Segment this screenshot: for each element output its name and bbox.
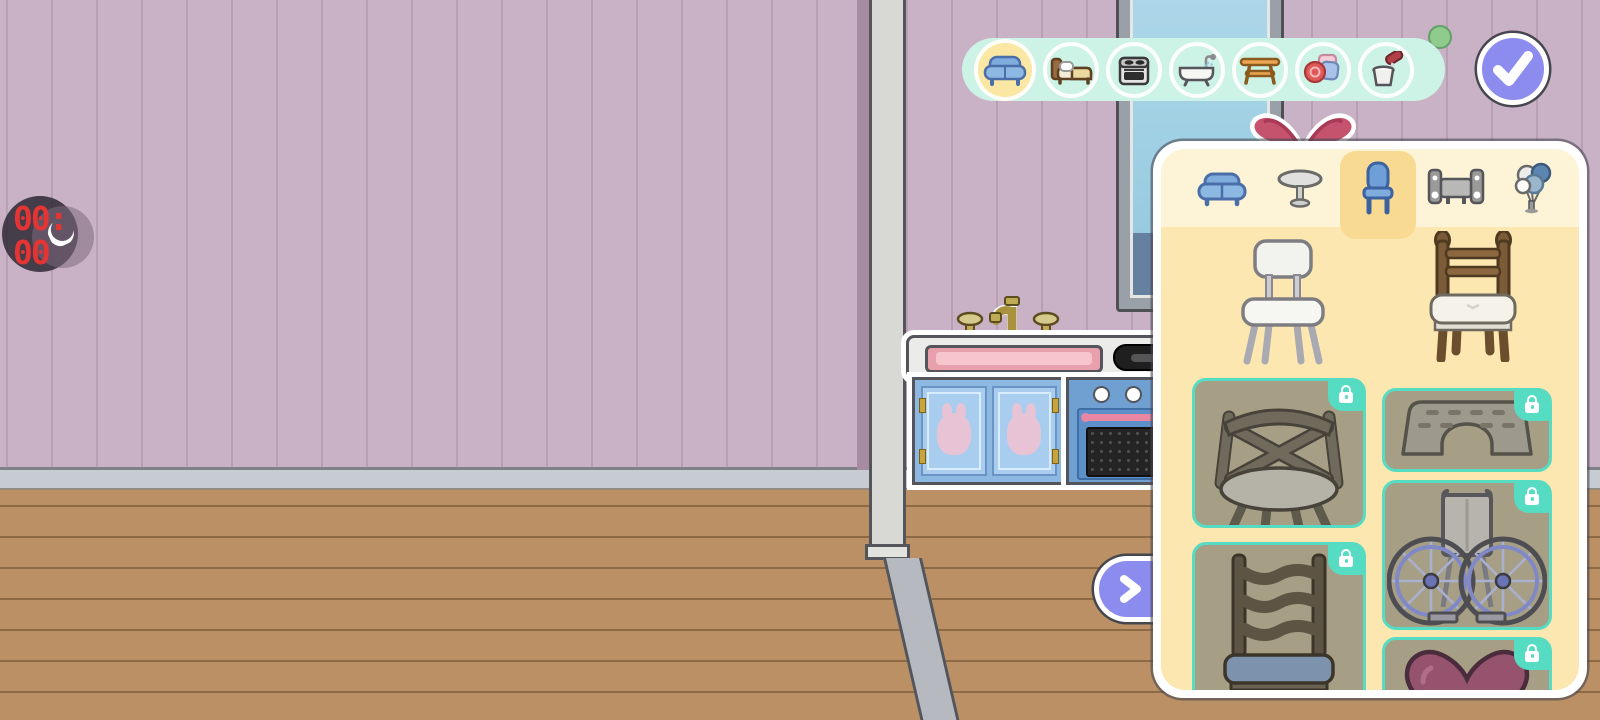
category-decorating[interactable] xyxy=(1358,42,1414,98)
panel-item-grid xyxy=(1161,227,1579,690)
table-icon xyxy=(1272,165,1328,211)
category-bathroom[interactable] xyxy=(1169,42,1225,98)
kitchen-sink-unit[interactable] xyxy=(900,295,1180,492)
item-wooden-cushion-chair[interactable] xyxy=(1429,231,1517,362)
lock-icon xyxy=(1514,482,1550,513)
tab-chairs[interactable] xyxy=(1339,149,1417,227)
category-outdoor[interactable] xyxy=(1232,42,1288,98)
balloons-icon xyxy=(1512,162,1556,214)
stove-icon xyxy=(1116,52,1152,88)
oven-knob xyxy=(1093,386,1110,403)
oven-handle xyxy=(1083,414,1161,421)
timer-clock[interactable]: 00: 00 xyxy=(2,192,98,288)
lock-icon xyxy=(1328,380,1364,411)
paint-roller-icon xyxy=(1367,51,1405,89)
sofa-icon xyxy=(1194,168,1250,208)
lock-icon xyxy=(1328,544,1364,575)
bunny-decal xyxy=(1007,413,1041,455)
chevron-right-icon xyxy=(1115,572,1145,606)
confirm-button[interactable] xyxy=(1477,33,1549,105)
chair-icon xyxy=(1358,160,1398,216)
item-cross-back-chair[interactable] xyxy=(1192,378,1366,528)
cabinet-door xyxy=(992,386,1058,476)
panel-collapse-button[interactable] xyxy=(1094,556,1160,622)
tab-tables[interactable] xyxy=(1261,149,1339,227)
panel-tabs xyxy=(1161,149,1579,227)
item-white-chair[interactable] xyxy=(1235,239,1331,365)
divider-wall-shadow xyxy=(857,0,869,470)
pillows-icon xyxy=(1302,52,1344,88)
lock-icon xyxy=(1514,639,1550,670)
category-sofas[interactable] xyxy=(974,39,1036,101)
game-scene: 00: 00 xyxy=(0,0,1600,720)
category-kitchen[interactable] xyxy=(1106,42,1162,98)
item-ladder-back-chair[interactable] xyxy=(1192,542,1366,690)
category-beds[interactable] xyxy=(1043,42,1099,98)
item-step-stool[interactable] xyxy=(1382,388,1552,472)
lock-icon xyxy=(1514,390,1550,421)
tv-console-icon xyxy=(1426,166,1486,210)
item-wheelchair[interactable] xyxy=(1382,480,1552,630)
bunny-decal xyxy=(937,413,971,455)
sofa-icon xyxy=(982,53,1028,87)
bathtub-icon xyxy=(1176,52,1218,88)
item-heart-chair[interactable] xyxy=(1382,637,1552,690)
tab-decorations[interactable] xyxy=(1495,149,1573,227)
sink-basin xyxy=(925,345,1103,373)
picnic-table-icon xyxy=(1237,54,1283,86)
checkmark-icon xyxy=(1490,48,1536,90)
timer-value: 00: 00 xyxy=(13,202,67,270)
bed-icon xyxy=(1048,53,1094,87)
category-cushions[interactable] xyxy=(1295,42,1351,98)
oven-knob xyxy=(1125,386,1142,403)
tab-media-furniture[interactable] xyxy=(1417,149,1495,227)
furniture-panel xyxy=(1153,141,1587,698)
kitchen-cabinet xyxy=(912,377,1066,485)
kitchen-counter xyxy=(906,335,1172,379)
tab-sofas[interactable] xyxy=(1183,149,1261,227)
category-toolbar xyxy=(962,38,1445,101)
cabinet-door xyxy=(921,386,987,476)
